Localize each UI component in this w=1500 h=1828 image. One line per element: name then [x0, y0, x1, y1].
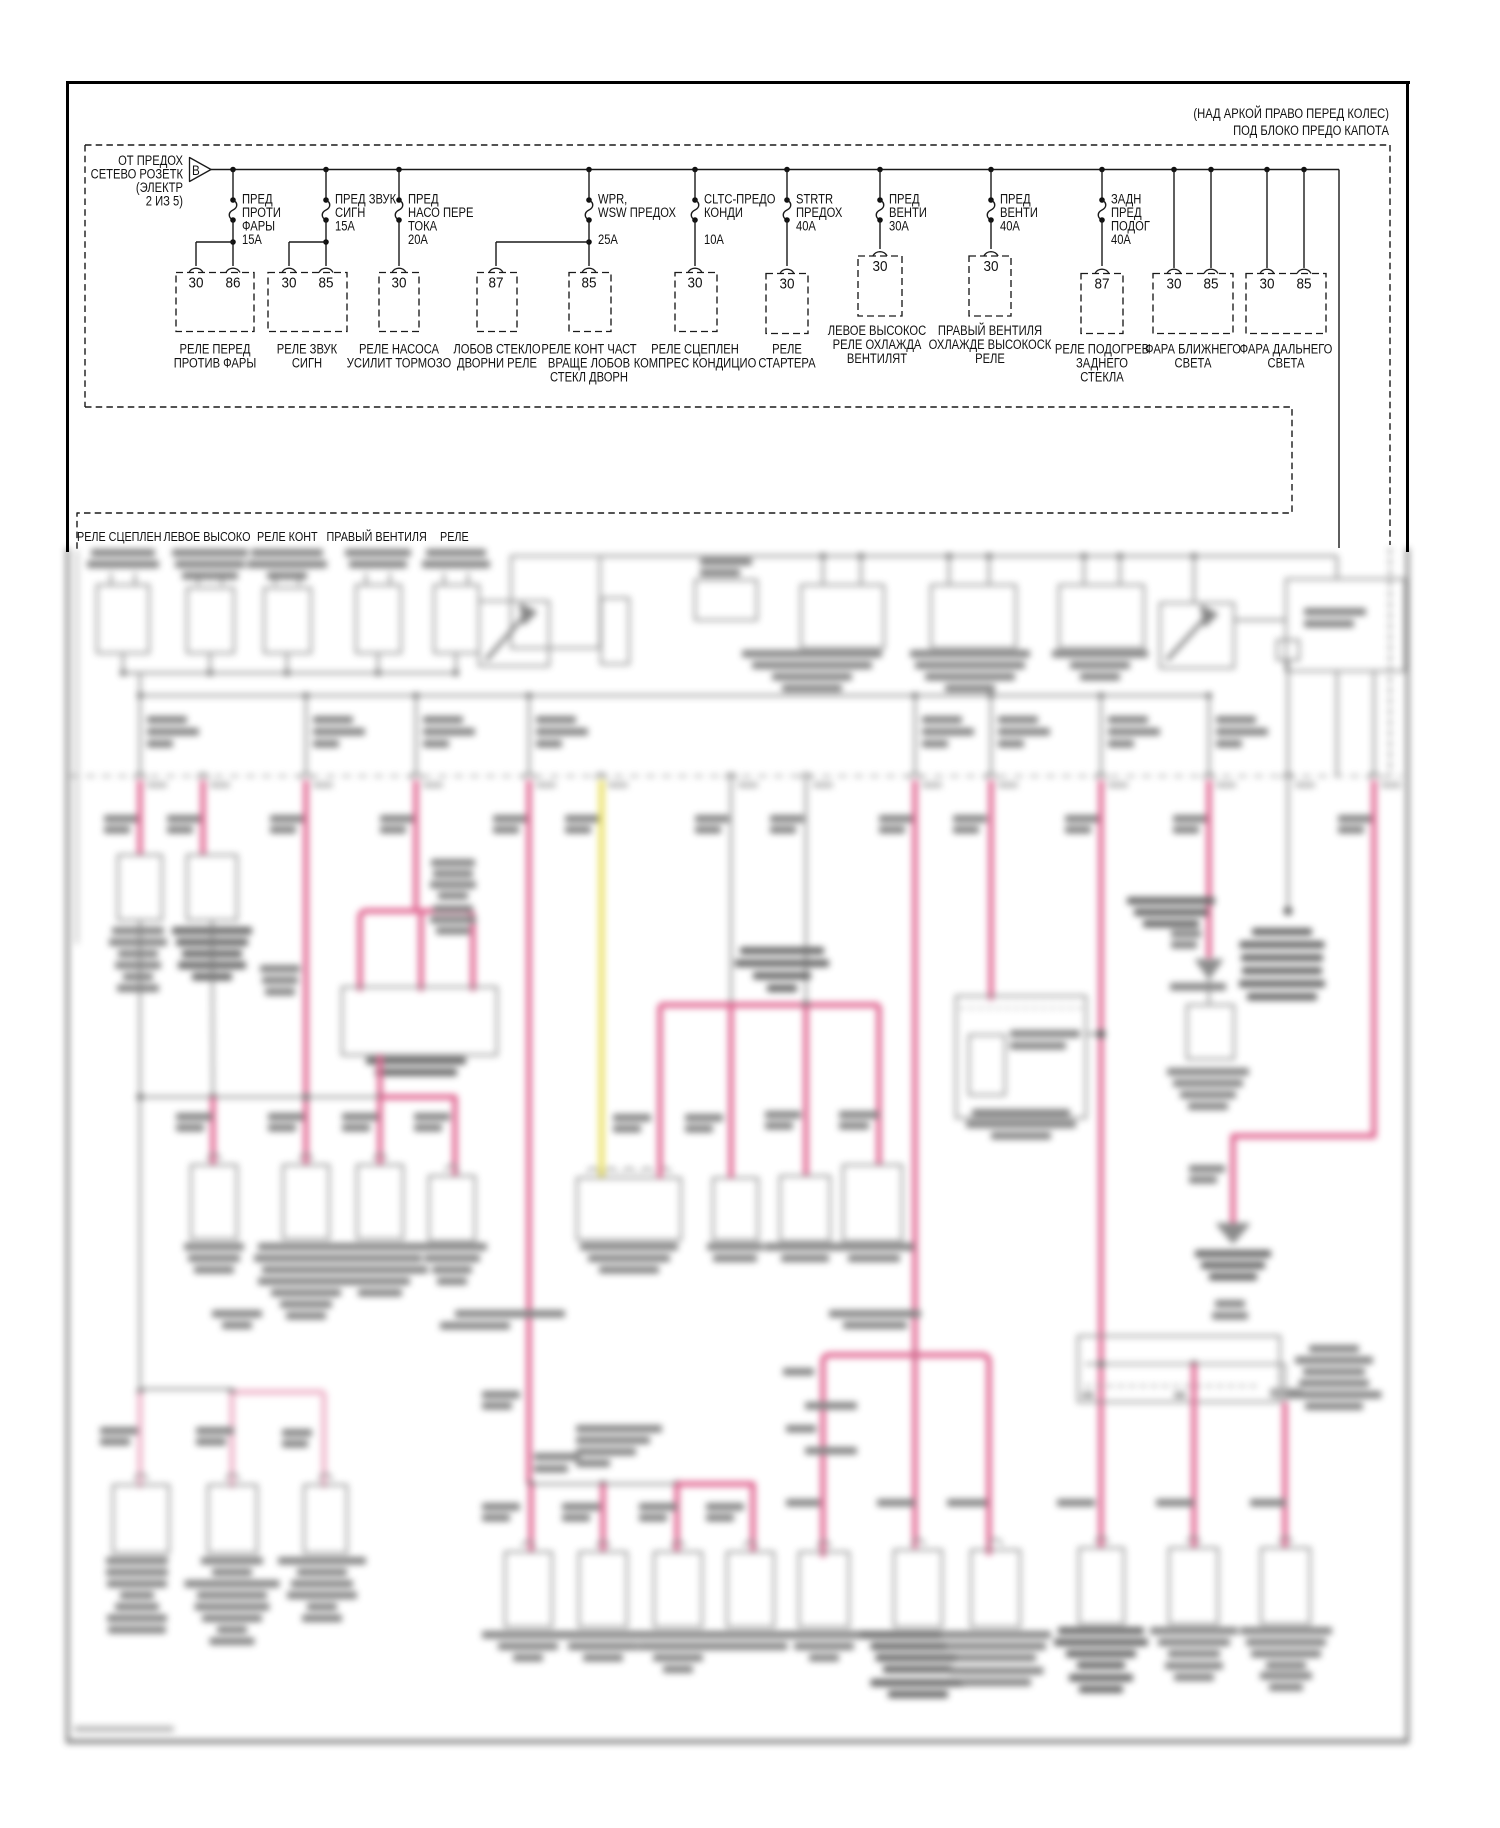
svg-text:КОНДИ: КОНДИ [704, 205, 743, 220]
svg-text:85: 85 [582, 275, 597, 292]
svg-text:ФАРА ДАЛЬНЕГО: ФАРА ДАЛЬНЕГО [1240, 342, 1333, 357]
svg-text:РЕЛЕ ПОДОГРЕВ: РЕЛЕ ПОДОГРЕВ [1055, 342, 1149, 357]
svg-text:РЕЛЕ ПЕРЕД: РЕЛЕ ПЕРЕД [180, 342, 251, 357]
svg-text:ОХЛАЖДЕ ВЫСОКОСК: ОХЛАЖДЕ ВЫСОКОСК [929, 337, 1052, 352]
svg-text:40А: 40А [1111, 232, 1131, 247]
svg-text:ПРАВЫЙ ВЕНТИЛЯ: ПРАВЫЙ ВЕНТИЛЯ [938, 323, 1042, 338]
svg-text:КОМПРЕС КОНДИЦИО: КОМПРЕС КОНДИЦИО [634, 356, 757, 371]
svg-text:ПРАВЫЙ ВЕНТИЛЯ: ПРАВЫЙ ВЕНТИЛЯ [327, 529, 427, 544]
svg-text:СТАРТЕРА: СТАРТЕРА [758, 356, 815, 371]
svg-text:40А: 40А [1000, 219, 1020, 234]
svg-text:30: 30 [282, 275, 297, 292]
svg-text:РЕЛЕ КОНТ: РЕЛЕ КОНТ [257, 529, 318, 544]
svg-text:20А: 20А [408, 232, 428, 247]
svg-text:30: 30 [1167, 276, 1182, 293]
svg-text:УСИЛИТ ТОРМОЗО: УСИЛИТ ТОРМОЗО [347, 356, 451, 371]
svg-text:30А: 30А [889, 219, 909, 234]
svg-text:30: 30 [688, 275, 703, 292]
svg-text:85: 85 [1204, 276, 1219, 293]
svg-text:ПОД БЛОКО ПРЕДО КАПОТА: ПОД БЛОКО ПРЕДО КАПОТА [1233, 123, 1389, 138]
svg-text:ДВОРНИ РЕЛЕ: ДВОРНИ РЕЛЕ [457, 356, 537, 371]
svg-text:РЕЛЕ КОНТ ЧАСТ: РЕЛЕ КОНТ ЧАСТ [541, 342, 636, 357]
svg-text:30: 30 [984, 258, 999, 275]
svg-text:РЕЛЕ: РЕЛЕ [440, 529, 469, 544]
svg-text:РЕЛЕ СЦЕПЛЕН: РЕЛЕ СЦЕПЛЕН [77, 529, 162, 544]
svg-text:B: B [192, 162, 200, 178]
svg-text:ПРОТИВ ФАРЫ: ПРОТИВ ФАРЫ [174, 356, 257, 371]
svg-text:ЛЕВОЕ ВЫСОКО: ЛЕВОЕ ВЫСОКО [164, 529, 251, 544]
svg-text:ЗАДНЕГО: ЗАДНЕГО [1076, 356, 1128, 371]
svg-text:ВРАЩЕ ЛОБОВ: ВРАЩЕ ЛОБОВ [548, 356, 630, 371]
svg-text:РЕЛЕ ЗВУК: РЕЛЕ ЗВУК [277, 342, 338, 357]
svg-text:РЕЛЕ: РЕЛЕ [772, 342, 802, 357]
svg-text:30: 30 [873, 258, 888, 275]
svg-text:86: 86 [226, 275, 241, 292]
svg-text:2 ИЗ 5): 2 ИЗ 5) [146, 194, 183, 209]
svg-text:СВЕТА: СВЕТА [1175, 356, 1212, 371]
svg-text:ЛОБОВ СТЕКЛО: ЛОБОВ СТЕКЛО [453, 342, 540, 357]
svg-text:25А: 25А [598, 232, 618, 247]
svg-text:РЕЛЕ ОХЛАЖДА: РЕЛЕ ОХЛАЖДА [833, 337, 922, 352]
svg-text:ВЕНТИЛЯТ: ВЕНТИЛЯТ [847, 351, 907, 366]
svg-text:87: 87 [489, 275, 504, 292]
svg-text:СТЕКЛ ДВОРН: СТЕКЛ ДВОРН [550, 370, 628, 385]
svg-text:15А: 15А [335, 219, 355, 234]
svg-text:30: 30 [189, 275, 204, 292]
svg-text:РЕЛЕ: РЕЛЕ [975, 351, 1005, 366]
svg-text:30: 30 [780, 276, 795, 293]
svg-text:РЕЛЕ СЦЕПЛЕН: РЕЛЕ СЦЕПЛЕН [651, 342, 739, 357]
svg-text:СВЕТА: СВЕТА [1268, 356, 1305, 371]
svg-text:WSW ПРЕДОХ: WSW ПРЕДОХ [598, 205, 676, 220]
svg-text:15А: 15А [242, 232, 262, 247]
svg-text:87: 87 [1095, 276, 1110, 293]
svg-text:85: 85 [1297, 276, 1312, 293]
svg-text:10А: 10А [704, 232, 724, 247]
svg-text:40А: 40А [796, 219, 816, 234]
svg-text:РЕЛЕ НАСОСА: РЕЛЕ НАСОСА [359, 342, 439, 357]
svg-text:ЛЕВОЕ ВЫСОКОС: ЛЕВОЕ ВЫСОКОС [828, 323, 927, 338]
svg-text:85: 85 [319, 275, 334, 292]
svg-text:СИГН: СИГН [292, 356, 322, 371]
svg-text:30: 30 [1260, 276, 1275, 293]
svg-text:ФАРА БЛИЖНЕГО: ФАРА БЛИЖНЕГО [1145, 342, 1241, 357]
svg-text:30: 30 [392, 275, 407, 292]
svg-text:СТЕКЛА: СТЕКЛА [1080, 370, 1123, 385]
svg-text:(НАД АРКОЙ ПРАВО ПЕРЕД КОЛЕС): (НАД АРКОЙ ПРАВО ПЕРЕД КОЛЕС) [1193, 106, 1389, 121]
